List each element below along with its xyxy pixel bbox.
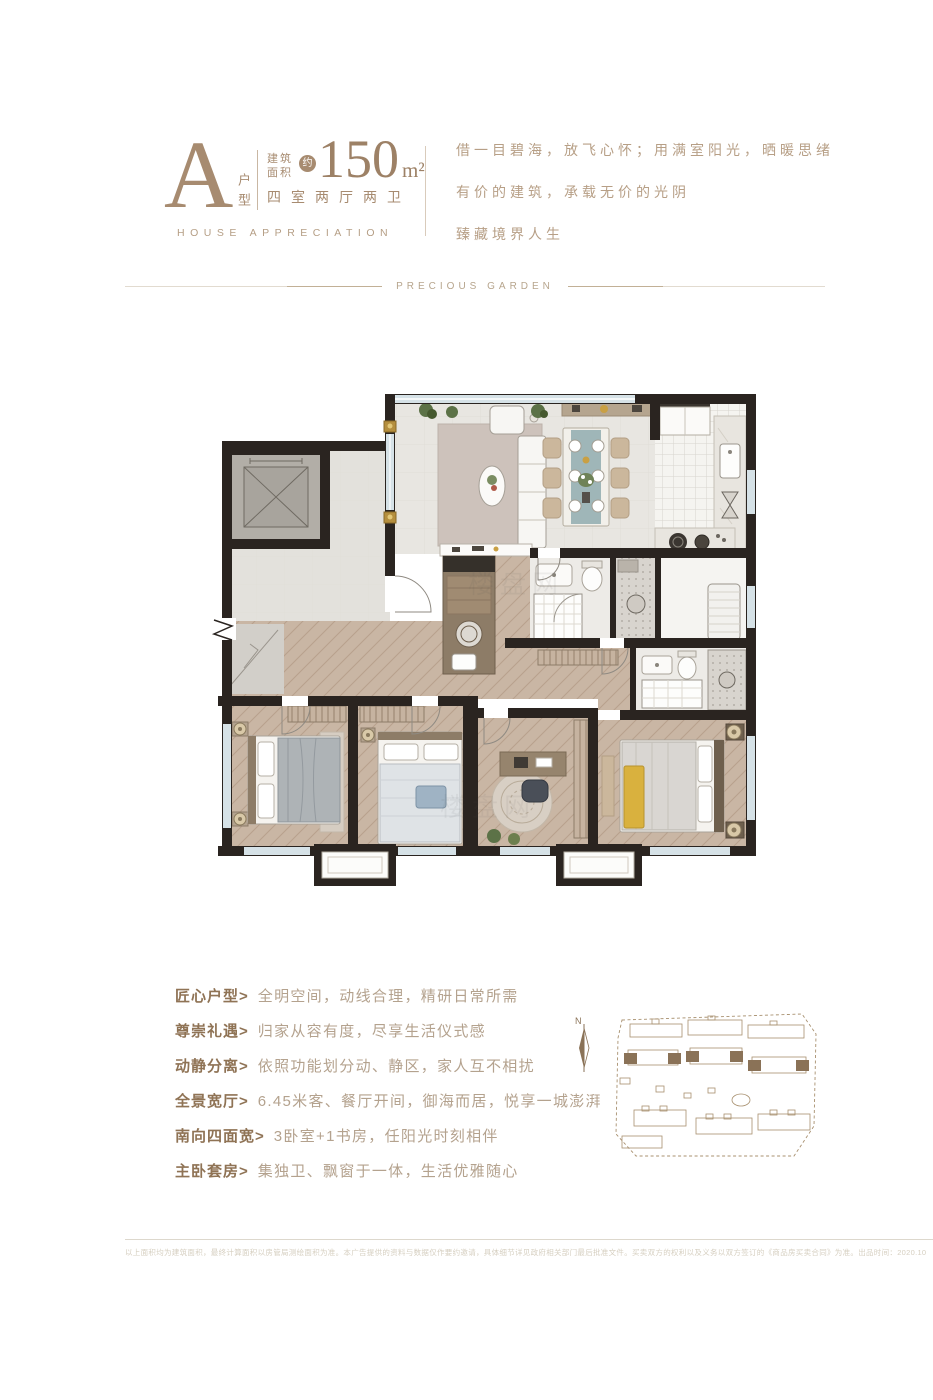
divider-accent-left	[287, 286, 382, 287]
armchair	[490, 406, 524, 434]
feature-label: 动静分离>	[175, 1058, 249, 1075]
feature-desc: 归家从容有度，尽享生活仪式感	[258, 1023, 486, 1040]
feature-desc: 全明空间，动线合理，精研日常所需	[258, 988, 519, 1005]
site-plan: N	[556, 1008, 856, 1183]
subtitle-en: HOUSE APPRECIATION	[177, 227, 393, 239]
feature-label: 全景宽厅>	[175, 1093, 249, 1110]
divider-line-right	[663, 286, 825, 287]
approx-badge: 约	[299, 155, 316, 172]
bookshelf	[574, 720, 588, 838]
feature-desc: 6.45米客、餐厅开间，御海而居，悦享一城澎湃	[258, 1093, 602, 1110]
feature-item: 匠心户型>全明空间，动线合理，精研日常所需	[175, 985, 602, 1006]
elevator	[222, 445, 330, 549]
area-value: 150m²	[318, 128, 425, 190]
footer-disclaimer: 以上面积均为建筑面积，最终计算面积以房管局测绘面积为准。本广告提供的资料与数据仅…	[125, 1247, 926, 1258]
feature-label: 主卧套房>	[175, 1163, 249, 1180]
kitchen-sink	[720, 444, 740, 478]
tagline-line1: 借一目碧海，放飞心怀；用满室阳光，晒暖思绪	[456, 140, 834, 160]
footer-rule	[125, 1239, 933, 1240]
desk	[500, 752, 566, 776]
master-bedroom	[602, 724, 744, 838]
area-label-line1: 建筑	[267, 152, 293, 166]
watermark-text-2: 楼盘网	[440, 792, 536, 822]
tagline-line3: 臻藏境界人生	[456, 224, 834, 244]
brochure-page: A 户型 建筑 面积 约 150m² 四室两厅两卫 HOUSE APPRECIA…	[0, 0, 933, 1400]
unit-type-letter: A	[164, 134, 233, 216]
bed1-wardrobe	[288, 706, 346, 722]
section-divider: PRECIOUS GARDEN	[125, 281, 825, 292]
unit-type-label: 户型	[234, 173, 253, 213]
feature-label: 匠心户型>	[175, 988, 249, 1005]
divider-label: PRECIOUS GARDEN	[396, 281, 554, 292]
hall-wardrobe	[538, 650, 618, 665]
shower-drain	[627, 595, 645, 613]
feature-item: 全景宽厅>6.45米客、餐厅开间，御海而居，悦享一城澎湃	[175, 1090, 602, 1111]
feature-item: 南向四面宽>3卧室+1书房，任阳光时刻相伴	[175, 1125, 602, 1146]
feature-desc: 3卧室+1书房，任阳光时刻相伴	[274, 1128, 499, 1145]
features-list: 匠心户型>全明空间，动线合理，精研日常所需 尊崇礼遇>归家从容有度，尽享生活仪式…	[175, 985, 602, 1195]
room-layout-text: 四室两厅两卫	[267, 187, 411, 207]
bed2-wardrobe	[360, 706, 424, 722]
yellow-throw	[624, 766, 644, 828]
feature-item: 尊崇礼遇>归家从容有度，尽享生活仪式感	[175, 1020, 602, 1041]
feature-item: 动静分离>依照功能划分动、静区，家人互不相扰	[175, 1055, 602, 1076]
tagline: 借一目碧海，放飞心怀；用满室阳光，晒暖思绪 有价的建筑，承载无价的光阴 臻藏境界…	[456, 140, 834, 266]
area-number: 150	[318, 129, 399, 189]
compass-label: N	[575, 1016, 582, 1026]
bath1-shower	[534, 594, 582, 640]
area-label-line2: 面积	[267, 166, 293, 180]
compass-icon: N	[575, 1016, 589, 1072]
feature-label: 尊崇礼遇>	[175, 1023, 249, 1040]
feature-label: 南向四面宽>	[175, 1128, 265, 1145]
floorplan-image: 楼盘网 楼盘网	[200, 388, 760, 893]
tagline-line2: 有价的建筑，承载无价的光阴	[456, 182, 834, 202]
site-buildings	[620, 1016, 810, 1148]
washer	[456, 621, 482, 647]
feature-desc: 依照功能划分动、静区，家人互不相扰	[258, 1058, 535, 1075]
divider-line-left	[125, 286, 287, 287]
bath1-toilet	[582, 567, 602, 591]
master-bath-toilet	[678, 657, 696, 679]
area-label: 建筑 面积	[267, 152, 293, 180]
feature-item: 主卧套房>集独卫、飘窗于一体，生活优雅随心	[175, 1160, 602, 1181]
header-divider-2	[425, 146, 426, 236]
watermark-text-1: 楼盘网	[468, 569, 564, 599]
divider-accent-right	[568, 286, 663, 287]
area-unit: m²	[402, 158, 425, 182]
header-divider-1	[257, 150, 258, 210]
feature-desc: 集独卫、飘窗于一体，生活优雅随心	[258, 1163, 519, 1180]
highlighted-units	[624, 1051, 809, 1071]
